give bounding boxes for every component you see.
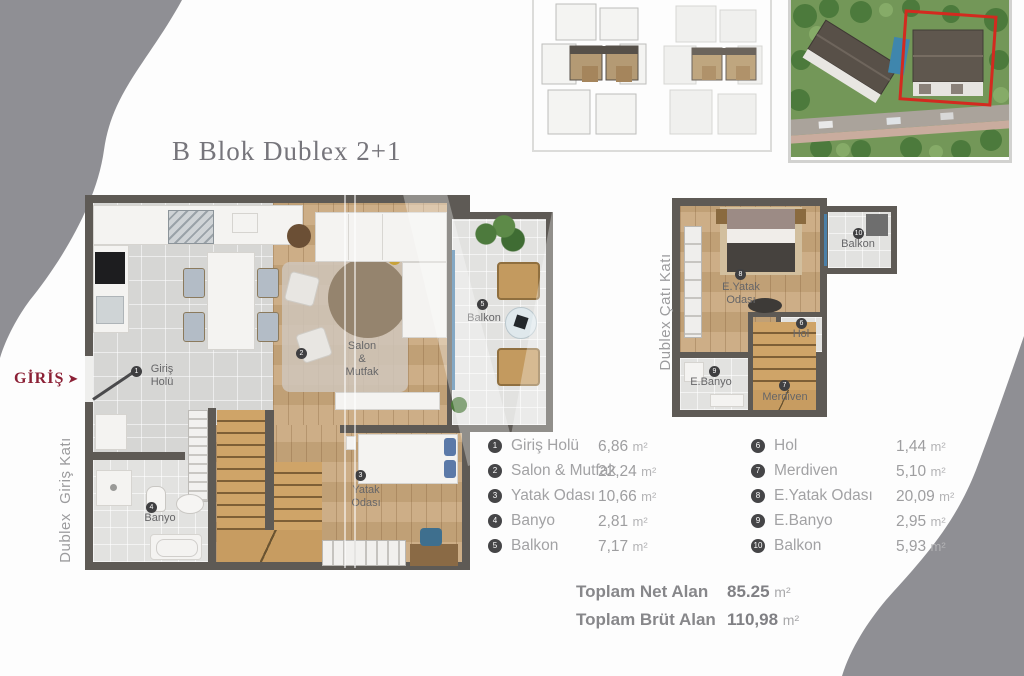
room-marker: 9 xyxy=(709,366,720,377)
room-label-merdiven: Merdiven xyxy=(756,391,814,404)
legend-row: 1 Giriş Holü xyxy=(488,435,579,457)
legend-num-badge: 5 xyxy=(488,539,502,553)
aerial-view-graphic xyxy=(791,0,1009,157)
highlighted-units-right xyxy=(692,48,756,80)
entrance-arrow-icon: ➤ xyxy=(67,372,79,387)
highlighted-units-left xyxy=(570,46,638,82)
legend-row: 5 Balkon xyxy=(488,535,558,557)
legend-num-badge: 3 xyxy=(488,489,502,503)
legend-num-badge: 4 xyxy=(488,514,502,528)
nightstand xyxy=(716,209,727,224)
room-marker: 8 xyxy=(735,269,746,280)
site-plan-thumbnail xyxy=(532,0,772,152)
roof-floor-side-label: Dublex Çatı Katı xyxy=(657,217,677,407)
room-marker: 6 xyxy=(796,318,807,329)
roof-bath-vanity xyxy=(710,394,744,407)
legend-num-badge: 6 xyxy=(751,439,765,453)
legend-row: 4 Banyo xyxy=(488,510,555,532)
roof-bed-pillows xyxy=(727,209,795,229)
total-net-area-value: 85.25 m² xyxy=(727,582,791,602)
legend-row: 10 Balkon xyxy=(751,535,821,557)
legend-row: 8 E.Yatak Odası xyxy=(751,485,873,507)
ground-floor-side-label: Dublex Giriş Katı xyxy=(57,405,77,595)
room-label-eyatak: E.Yatak Odası xyxy=(712,281,770,307)
legend-row: 6 Hol xyxy=(751,435,797,457)
roof-balcony-glass-door xyxy=(824,214,827,266)
room-label-hol: Hol xyxy=(786,328,816,341)
building-b xyxy=(913,30,983,96)
legend-num-badge: 8 xyxy=(751,489,765,503)
legend-num-badge: 1 xyxy=(488,439,502,453)
room-marker: 7 xyxy=(779,380,790,391)
floorplan-page: B Blok Dublex 2+1 GİRİŞ➤ Dublex Giriş Ka… xyxy=(0,0,1024,676)
legend-row: 7 Merdiven xyxy=(751,460,838,482)
roof-bed-blanket xyxy=(727,243,795,272)
page-title: B Blok Dublex 2+1 xyxy=(172,136,502,167)
total-net-area-label: Toplam Net Alan xyxy=(576,582,708,602)
legend-num-badge: 9 xyxy=(751,514,765,528)
legend-num-badge: 10 xyxy=(751,539,765,553)
legend-row: 3 Yatak Odası xyxy=(488,485,595,507)
total-gross-area-value: 110,98 m² xyxy=(727,610,799,630)
total-gross-area-label: Toplam Brüt Alan xyxy=(576,610,716,630)
aerial-view-thumbnail xyxy=(788,0,1012,163)
legend-num-badge: 2 xyxy=(488,464,502,478)
legend-row: 2 Salon & Mutfak xyxy=(488,460,616,482)
legend-row: 9 E.Banyo xyxy=(751,510,833,532)
roof-wardrobe xyxy=(684,226,702,338)
nightstand xyxy=(795,209,806,224)
room-label-roof-balkon: Balkon xyxy=(834,238,882,251)
site-plan-graphic xyxy=(534,0,770,148)
legend-num-badge: 7 xyxy=(751,464,765,478)
room-marker: 10 xyxy=(853,228,864,239)
entrance-label: GİRİŞ➤ xyxy=(14,370,79,388)
roof-balcony-unit xyxy=(866,214,888,236)
roof-bed-sheet xyxy=(727,229,795,243)
room-label-ebanyo: E.Banyo xyxy=(686,376,736,389)
